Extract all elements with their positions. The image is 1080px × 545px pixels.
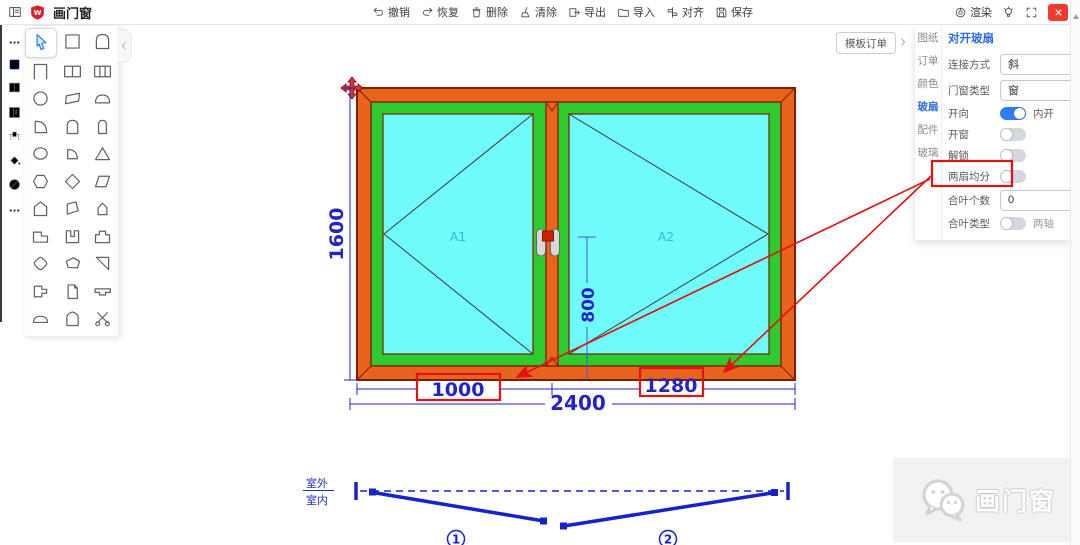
palette-tool-circle[interactable] bbox=[25, 85, 55, 113]
circle-icon bbox=[30, 88, 51, 109]
toolbar-right: 渲染 bbox=[954, 0, 1068, 24]
fullscreen-icon bbox=[1025, 6, 1038, 19]
palette-tool-rounded-diamond[interactable] bbox=[25, 250, 55, 278]
select-hinge-count[interactable]: 0 bbox=[1000, 190, 1080, 211]
rounded-diamond-icon bbox=[30, 253, 51, 274]
cursor-icon bbox=[31, 32, 52, 53]
pentagon-icon bbox=[30, 198, 51, 219]
narrow-arch-icon bbox=[92, 116, 113, 137]
field-row-unlock: 解锁 bbox=[948, 145, 1080, 166]
field-label-open-sash: 开窗 bbox=[948, 127, 1000, 142]
palette-tool-triangle[interactable] bbox=[88, 140, 118, 168]
palette-tool-folded-sheet[interactable] bbox=[57, 278, 87, 306]
palette-tool-small-pentagon[interactable] bbox=[88, 195, 118, 223]
skew-poly-icon bbox=[62, 198, 83, 219]
panel-tab-1[interactable]: 订单 bbox=[918, 54, 939, 68]
toolbar-right-button-2[interactable] bbox=[1025, 6, 1038, 19]
palette-tool-window-double[interactable] bbox=[57, 58, 87, 86]
close-icon bbox=[1053, 7, 1064, 18]
palette-tool-right-triangle[interactable] bbox=[88, 250, 118, 278]
dome-icon bbox=[92, 88, 113, 109]
palette-tool-scissors[interactable] bbox=[88, 305, 118, 333]
chevron-left-icon bbox=[118, 40, 130, 52]
plan-number-1: 1 bbox=[452, 533, 460, 545]
palette-tool-square[interactable] bbox=[57, 28, 87, 56]
scroll-up-arrow-icon[interactable] bbox=[1073, 14, 1079, 19]
dim-right-sash[interactable]: 1280 bbox=[645, 375, 698, 397]
toggle-open-direction[interactable] bbox=[1000, 107, 1026, 120]
toggle-suffix-hinge-type: 两轴 bbox=[1033, 216, 1054, 231]
step-rect-icon bbox=[30, 226, 51, 247]
toolbar-button-label: 删除 bbox=[486, 4, 508, 20]
blob-icon bbox=[62, 253, 83, 274]
toolbar-button-label: 保存 bbox=[731, 4, 753, 20]
pane-label-a2: A2 bbox=[658, 229, 675, 244]
small-pentagon-icon bbox=[92, 198, 113, 219]
panel-tab-0[interactable]: 图纸 bbox=[918, 31, 939, 45]
shape-palette bbox=[25, 25, 119, 337]
ellipse-icon bbox=[30, 143, 51, 164]
door-frame-icon bbox=[30, 61, 51, 82]
palette-tool-low-dome[interactable] bbox=[25, 305, 55, 333]
skew-rect-icon bbox=[92, 171, 113, 192]
app-title: 画门窗 bbox=[53, 3, 92, 22]
palette-tool-p-shape[interactable] bbox=[25, 278, 55, 306]
wechat-icon bbox=[917, 476, 969, 524]
watermark-text: 画门窗 bbox=[975, 482, 1056, 518]
strip-tool-7-more-dots-icon[interactable] bbox=[5, 201, 23, 219]
p-shape-icon bbox=[30, 281, 51, 302]
plan-sash-1[interactable] bbox=[369, 489, 547, 525]
vertical-scrollbar[interactable] bbox=[1070, 0, 1080, 545]
menu-icon[interactable] bbox=[8, 5, 22, 19]
toolbar-button-4[interactable]: 导出 bbox=[568, 4, 606, 20]
top-bar: W 画门窗 撤销恢复删除清除导出导入对齐保存 渲染 bbox=[0, 0, 1080, 25]
pane-label-a1: A1 bbox=[450, 229, 467, 244]
strip-tool-6-slash-circle-icon[interactable] bbox=[5, 175, 23, 193]
toolbar-right-button-1[interactable] bbox=[1002, 6, 1015, 19]
right-triangle-icon bbox=[92, 253, 113, 274]
quarter-circle-icon bbox=[30, 116, 51, 137]
palette-tool-pentagon[interactable] bbox=[25, 195, 55, 223]
palette-tool-step-rect[interactable] bbox=[25, 223, 55, 251]
strip-tool-4-workbench-icon[interactable] bbox=[5, 127, 23, 145]
field-label-hinge-count: 合叶个数 bbox=[948, 193, 1000, 208]
toolbar-button-0[interactable]: 撤销 bbox=[372, 4, 410, 20]
select-value: 斜 bbox=[1008, 56, 1019, 72]
palette-tool-diamond[interactable] bbox=[57, 168, 87, 196]
plan-number-2: 2 bbox=[664, 533, 672, 545]
save-icon bbox=[715, 6, 728, 19]
broom-icon bbox=[519, 6, 532, 19]
panel-tabs: 图纸订单颜色玻扇配件玻璃 bbox=[915, 25, 942, 240]
toggle-unlock[interactable] bbox=[1000, 149, 1026, 162]
field-label-window-type: 门窗类型 bbox=[948, 83, 1000, 98]
render-icon bbox=[954, 6, 967, 19]
select-window-type[interactable]: 窗 bbox=[1000, 80, 1080, 101]
panel-tab-5[interactable]: 玻璃 bbox=[918, 146, 939, 160]
palette-tool-cursor[interactable] bbox=[25, 28, 57, 58]
field-row-window-type: 门窗类型窗 bbox=[948, 77, 1080, 103]
strip-tool-0-more-dots-icon[interactable] bbox=[5, 33, 23, 51]
undo-icon bbox=[372, 6, 385, 19]
toolbar-button-7[interactable]: 保存 bbox=[715, 4, 753, 20]
parallelogram-icon bbox=[62, 88, 83, 109]
quarter-pie-icon bbox=[62, 143, 83, 164]
palette-tool-u-shape[interactable] bbox=[57, 223, 87, 251]
field-label-unlock: 解锁 bbox=[948, 148, 1000, 163]
template-order-button[interactable]: 模板订单 bbox=[836, 32, 896, 54]
toolbar-button-label: 导出 bbox=[584, 4, 606, 20]
select-value: 0 bbox=[1008, 194, 1014, 206]
redo-icon bbox=[421, 6, 434, 19]
plan-sash-2[interactable] bbox=[560, 489, 778, 530]
palette-tool-skew-poly[interactable] bbox=[57, 195, 87, 223]
palette-tool-quarter-pie[interactable] bbox=[57, 140, 87, 168]
dim-left-sash[interactable]: 1000 bbox=[432, 379, 485, 401]
square-icon bbox=[62, 31, 83, 52]
window-triple-icon bbox=[92, 61, 113, 82]
palette-tool-skew-rect[interactable] bbox=[88, 168, 118, 196]
field-row-hinge-count: 合叶个数0 bbox=[948, 187, 1080, 213]
palette-tool-parallelogram[interactable] bbox=[57, 85, 87, 113]
toolbar-button-5[interactable]: 导入 bbox=[617, 4, 655, 20]
t-shape-icon bbox=[92, 281, 113, 302]
strip-tool-3-panel-list-icon[interactable] bbox=[5, 103, 23, 121]
panel-tab-3[interactable]: 玻扇 bbox=[918, 100, 939, 114]
app-logo: W bbox=[29, 4, 46, 21]
toolbar-button-2[interactable]: 删除 bbox=[470, 4, 508, 20]
strip-tool-1-square-tool-icon[interactable] bbox=[5, 55, 23, 73]
palette-collapse-button[interactable] bbox=[117, 29, 132, 63]
toolbar-button-3[interactable]: 清除 bbox=[519, 4, 557, 20]
toggle-hinge-type[interactable] bbox=[1000, 217, 1026, 230]
toolbar-button-label: 对齐 bbox=[682, 4, 704, 20]
triangle-icon bbox=[92, 143, 113, 164]
palette-tool-hexagon[interactable] bbox=[25, 168, 55, 196]
palette-tool-dome[interactable] bbox=[88, 85, 118, 113]
right-sash[interactable]: A2 bbox=[569, 114, 769, 354]
round-arch-icon bbox=[62, 116, 83, 137]
scissors-icon bbox=[92, 308, 113, 329]
palette-tool-t-shape[interactable] bbox=[88, 278, 118, 306]
import-icon bbox=[617, 6, 630, 19]
diamond-icon bbox=[62, 171, 83, 192]
chevron-right-icon bbox=[897, 36, 909, 48]
tab-rect-icon bbox=[92, 226, 113, 247]
strip-tool-5-paint-bucket-icon[interactable] bbox=[5, 151, 23, 169]
toolbar-right-button-0[interactable]: 渲染 bbox=[954, 4, 992, 20]
toolbar-button-label: 清除 bbox=[535, 4, 557, 20]
hexagon-icon bbox=[30, 171, 51, 192]
plan-outside-label: 室外 bbox=[306, 476, 328, 490]
palette-tool-blob[interactable] bbox=[57, 250, 87, 278]
panel-title: 对开玻扇 bbox=[948, 29, 1080, 51]
properties-panel: 图纸订单颜色玻扇配件玻璃 对开玻扇 连接方式斜门窗类型窗开向内开开窗解锁两扇均分… bbox=[915, 25, 1070, 240]
align-icon bbox=[666, 6, 679, 19]
field-row-hinge-type: 合叶类型两轴 bbox=[948, 213, 1080, 234]
dim-height[interactable]: 1600 bbox=[326, 208, 348, 261]
palette-tool-quarter-circle[interactable] bbox=[25, 113, 55, 141]
brand-watermark: 画门窗 bbox=[893, 458, 1080, 542]
toggle-equal-split[interactable] bbox=[1000, 170, 1026, 183]
palette-tool-round-arch[interactable] bbox=[57, 113, 87, 141]
toolbar-button-6[interactable]: 对齐 bbox=[666, 4, 704, 20]
palette-tool-ellipse[interactable] bbox=[25, 140, 55, 168]
toolbar-button-label: 渲染 bbox=[970, 4, 992, 20]
select-value: 窗 bbox=[1008, 82, 1019, 98]
select-connect[interactable]: 斜 bbox=[1000, 54, 1080, 75]
field-label-hinge-type: 合叶类型 bbox=[948, 216, 1000, 231]
arch-door-icon bbox=[92, 31, 113, 52]
panel-tab-2[interactable]: 颜色 bbox=[918, 77, 939, 91]
close-button[interactable] bbox=[1048, 4, 1068, 21]
u-shape-icon bbox=[62, 226, 83, 247]
palette-tool-tab-rect[interactable] bbox=[88, 223, 118, 251]
plan-inside-label: 室内 bbox=[306, 493, 328, 507]
toggle-suffix-open-direction: 内开 bbox=[1033, 106, 1054, 121]
field-label-open-direction: 开向 bbox=[948, 106, 1000, 121]
field-row-connect: 连接方式斜 bbox=[948, 51, 1080, 77]
dim-total-width[interactable]: 2400 bbox=[550, 391, 606, 415]
field-row-open-direction: 开向内开 bbox=[948, 103, 1080, 124]
toolbar-button-label: 导入 bbox=[633, 4, 655, 20]
field-row-equal-split: 两扇均分 bbox=[948, 166, 1080, 187]
palette-tool-arch-door[interactable] bbox=[88, 28, 118, 56]
palette-tool-door-frame[interactable] bbox=[25, 58, 55, 86]
palette-tool-narrow-arch[interactable] bbox=[88, 113, 118, 141]
toolbar-button-label: 撤销 bbox=[388, 4, 410, 20]
pointed-arch-icon bbox=[62, 308, 83, 329]
svg-text:W: W bbox=[34, 7, 42, 16]
trash-icon bbox=[470, 6, 483, 19]
field-label-connect: 连接方式 bbox=[948, 57, 1000, 72]
plan-diagram: 室外 室内 1 2 bbox=[303, 476, 788, 545]
window-double-icon bbox=[62, 61, 83, 82]
window-edge-bar bbox=[0, 10, 2, 322]
toolbar-button-label: 恢复 bbox=[437, 4, 459, 20]
palette-tool-pointed-arch[interactable] bbox=[57, 305, 87, 333]
left-sash[interactable]: A1 bbox=[383, 114, 533, 354]
field-row-open-sash: 开窗 bbox=[948, 124, 1080, 145]
panel-tab-4[interactable]: 配件 bbox=[918, 123, 939, 137]
folded-sheet-icon bbox=[62, 281, 83, 302]
left-tool-strip bbox=[2, 25, 25, 333]
export-icon bbox=[568, 6, 581, 19]
bulb-icon bbox=[1002, 6, 1015, 19]
toolbar-button-1[interactable]: 恢复 bbox=[421, 4, 459, 20]
strip-tool-2-split-pane-icon[interactable] bbox=[5, 78, 23, 96]
low-dome-icon bbox=[30, 308, 51, 329]
dim-handle-height[interactable]: 800 bbox=[579, 287, 599, 323]
field-label-equal-split: 两扇均分 bbox=[948, 169, 1000, 184]
palette-tool-window-triple[interactable] bbox=[88, 58, 118, 86]
toggle-open-sash[interactable] bbox=[1000, 128, 1026, 141]
panel-expand-button[interactable] bbox=[896, 34, 910, 50]
toolbar: 撤销恢复删除清除导出导入对齐保存 bbox=[372, 0, 753, 24]
